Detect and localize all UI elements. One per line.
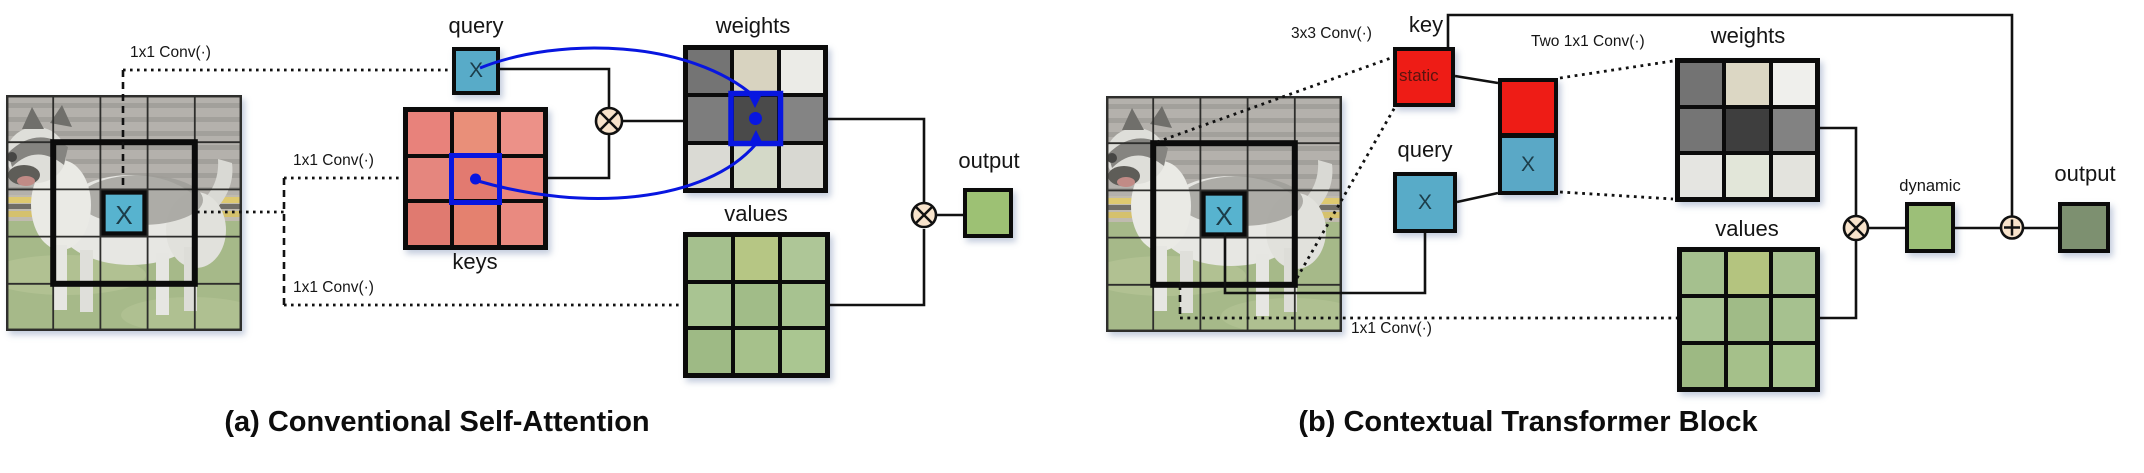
grid-cell <box>501 112 543 154</box>
input-image-b: X <box>1106 96 1342 332</box>
grid-cell <box>781 50 823 93</box>
query-block-a: X <box>452 47 500 95</box>
output-block-a <box>963 188 1013 238</box>
conv-label-keys-a: 1x1 Conv(·) <box>293 152 374 170</box>
grid-cell <box>408 158 450 200</box>
query-x-mark-b: X <box>1418 191 1432 215</box>
keys-label-a: keys <box>425 250 525 274</box>
key-block-b: static <box>1393 47 1455 107</box>
concat-query-half: X <box>1502 138 1554 191</box>
grid-cell <box>688 50 730 93</box>
connector-overlay <box>0 0 2144 473</box>
grid-cell <box>734 97 776 140</box>
grid-cell <box>781 145 823 188</box>
grid-cell <box>1773 298 1815 340</box>
dynamic-block-b <box>1905 202 1955 253</box>
grid-cell <box>688 237 731 280</box>
grid-cell <box>1682 252 1724 294</box>
multiply-operator-icon <box>1844 216 1868 240</box>
figure-canvas: X 1x1 Conv(·) 1x1 Conv(·) 1x1 Conv(·) qu… <box>0 0 2144 473</box>
grid-cell <box>454 112 496 154</box>
grid-cell <box>688 97 730 140</box>
caption-a: (a) Conventional Self-Attention <box>137 406 737 439</box>
weights-label-b: weights <box>1688 24 1808 48</box>
grid-cell <box>1728 252 1770 294</box>
grid-cell <box>781 97 823 140</box>
output-label-a: output <box>929 149 1049 173</box>
weights-grid-b <box>1675 58 1820 202</box>
grid-cell <box>1726 155 1768 197</box>
grid-cell <box>688 284 731 327</box>
grid-cell <box>454 158 496 200</box>
grid-cell <box>735 284 778 327</box>
grid-cell <box>454 203 496 245</box>
grid-cell <box>1773 345 1815 387</box>
grid-cell <box>734 145 776 188</box>
query-label-b: query <box>1375 138 1475 162</box>
flow-lines-b <box>1225 15 2058 318</box>
grid-cell <box>1773 63 1815 105</box>
output-block-b <box>2058 202 2110 253</box>
values-grid-a <box>683 232 830 378</box>
grid-cell <box>1682 345 1724 387</box>
two-conv-label-b: Two 1x1 Conv(·) <box>1531 33 1645 51</box>
grid-cell <box>735 330 778 373</box>
grid-cell <box>782 284 825 327</box>
grid-cell <box>734 50 776 93</box>
multiply-operator-icon <box>596 108 622 134</box>
grid-cell <box>782 237 825 280</box>
dynamic-label-b: dynamic <box>1870 177 1990 195</box>
values-grid-b <box>1677 247 1820 392</box>
values-label-a: values <box>696 202 816 226</box>
grid-cell <box>1726 109 1768 151</box>
keys-grid-a <box>403 107 548 250</box>
grid-cell <box>1773 109 1815 151</box>
grid-cell <box>688 145 730 188</box>
grid-cell <box>1726 63 1768 105</box>
concat-key-half <box>1502 82 1554 138</box>
static-tag-b: static <box>1399 66 1439 86</box>
grid-cell <box>408 203 450 245</box>
grid-cell <box>501 158 543 200</box>
grid-cell <box>1773 252 1815 294</box>
grid-cell <box>1680 63 1722 105</box>
conv1x1-label-b: 1x1 Conv(·) <box>1351 320 1432 338</box>
output-label-b: output <box>2025 162 2144 186</box>
grid-cell <box>735 237 778 280</box>
grid-cell <box>1773 155 1815 197</box>
input-image-a: X <box>6 95 242 331</box>
weights-label-a: weights <box>693 14 813 38</box>
weights-grid-a <box>683 45 828 193</box>
conv-label-values-a: 1x1 Conv(·) <box>293 279 374 297</box>
values-label-b: values <box>1687 217 1807 241</box>
grid-cell <box>1680 155 1722 197</box>
grid-cell <box>501 203 543 245</box>
input-x-mark-a: X <box>115 200 132 230</box>
grid-cell <box>782 330 825 373</box>
conv-label-query-a: 1x1 Conv(·) <box>130 44 211 62</box>
input-x-mark-b: X <box>1215 201 1232 231</box>
add-operator-icon <box>2001 217 2023 239</box>
concat-block-b: X <box>1498 78 1558 195</box>
grid-cell <box>1682 298 1724 340</box>
concat-x-mark: X <box>1521 153 1535 177</box>
grid-cell <box>408 112 450 154</box>
multiply-operator-icon <box>912 203 936 227</box>
query-block-b: X <box>1393 172 1457 233</box>
query-x-mark-a: X <box>469 59 483 83</box>
key-label-b: key <box>1376 13 1476 37</box>
query-label-a: query <box>426 14 526 38</box>
grid-cell <box>688 330 731 373</box>
grid-cell <box>1728 345 1770 387</box>
grid-cell <box>1728 298 1770 340</box>
grid-cell <box>1680 109 1722 151</box>
conv3x3-label-b: 3x3 Conv(·) <box>1291 25 1372 43</box>
caption-b: (b) Contextual Transformer Block <box>1228 406 1828 439</box>
